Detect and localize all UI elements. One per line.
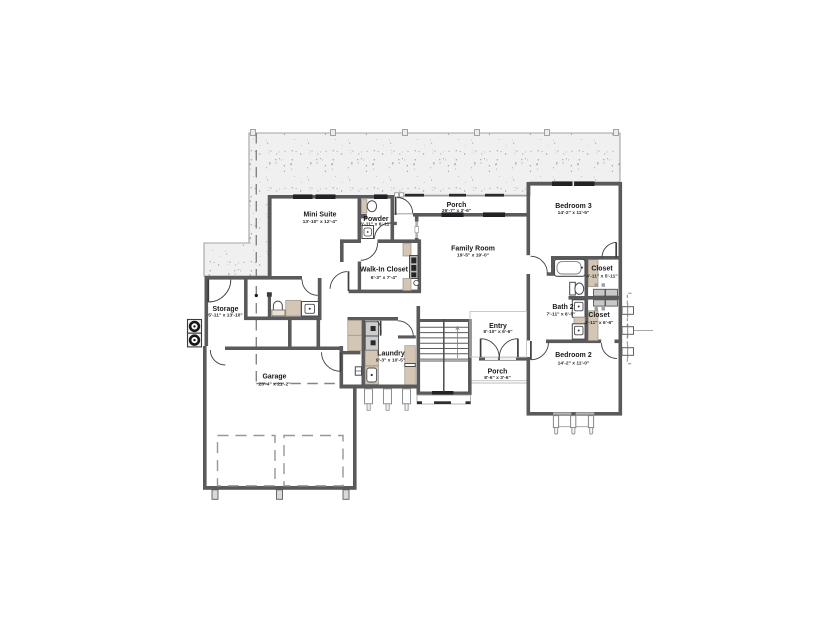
svg-text:Walk-In Closet: Walk-In Closet: [360, 267, 409, 274]
svg-text:8'-10" x 6'-6": 8'-10" x 6'-6": [483, 329, 512, 335]
svg-text:26'-7" x 2'-6": 26'-7" x 2'-6": [442, 208, 471, 214]
svg-text:7'-11" x 6'-5": 7'-11" x 6'-5": [547, 312, 576, 318]
svg-text:Storage: Storage: [212, 306, 238, 313]
svg-text:Porch: Porch: [488, 369, 508, 376]
svg-text:Closet: Closet: [591, 266, 613, 273]
svg-text:8'-6" x 3'-6": 8'-6" x 3'-6": [484, 375, 511, 381]
svg-text:19'-5" x 19'-0": 19'-5" x 19'-0": [457, 253, 489, 259]
svg-text:14'-2" x 11'-5": 14'-2" x 11'-5": [558, 210, 590, 216]
svg-text:4'-11" x 5'-11": 4'-11" x 5'-11": [586, 274, 617, 280]
svg-text:13'-10" x 12'-4": 13'-10" x 12'-4": [303, 219, 338, 225]
svg-text:Mini Suite: Mini Suite: [303, 212, 336, 219]
svg-text:5'-11" x 13'-10": 5'-11" x 13'-10": [208, 312, 242, 318]
svg-text:Bedroom 2: Bedroom 2: [555, 352, 592, 359]
svg-text:14'-2" x 11'-0": 14'-2" x 11'-0": [558, 361, 590, 367]
svg-text:Garage: Garage: [262, 374, 286, 381]
svg-text:23'-4" x 21'-2": 23'-4" x 21'-2": [259, 382, 291, 388]
svg-text:6'-3" x 7'-4": 6'-3" x 7'-4": [371, 275, 398, 281]
svg-text:Bath 2: Bath 2: [552, 304, 573, 311]
svg-text:Family Room: Family Room: [451, 246, 495, 253]
svg-text:Laundry: Laundry: [377, 351, 405, 358]
svg-text:6'-11" x 6'-11": 6'-11" x 6'-11": [360, 222, 391, 228]
svg-text:Closet: Closet: [588, 312, 610, 319]
svg-text:Bedroom 3: Bedroom 3: [555, 203, 592, 210]
svg-text:4'-11" x 6'-6": 4'-11" x 6'-6": [585, 320, 614, 326]
svg-text:Porch: Porch: [447, 202, 467, 209]
svg-text:9'-3" x 10'-5": 9'-3" x 10'-5": [376, 357, 405, 363]
